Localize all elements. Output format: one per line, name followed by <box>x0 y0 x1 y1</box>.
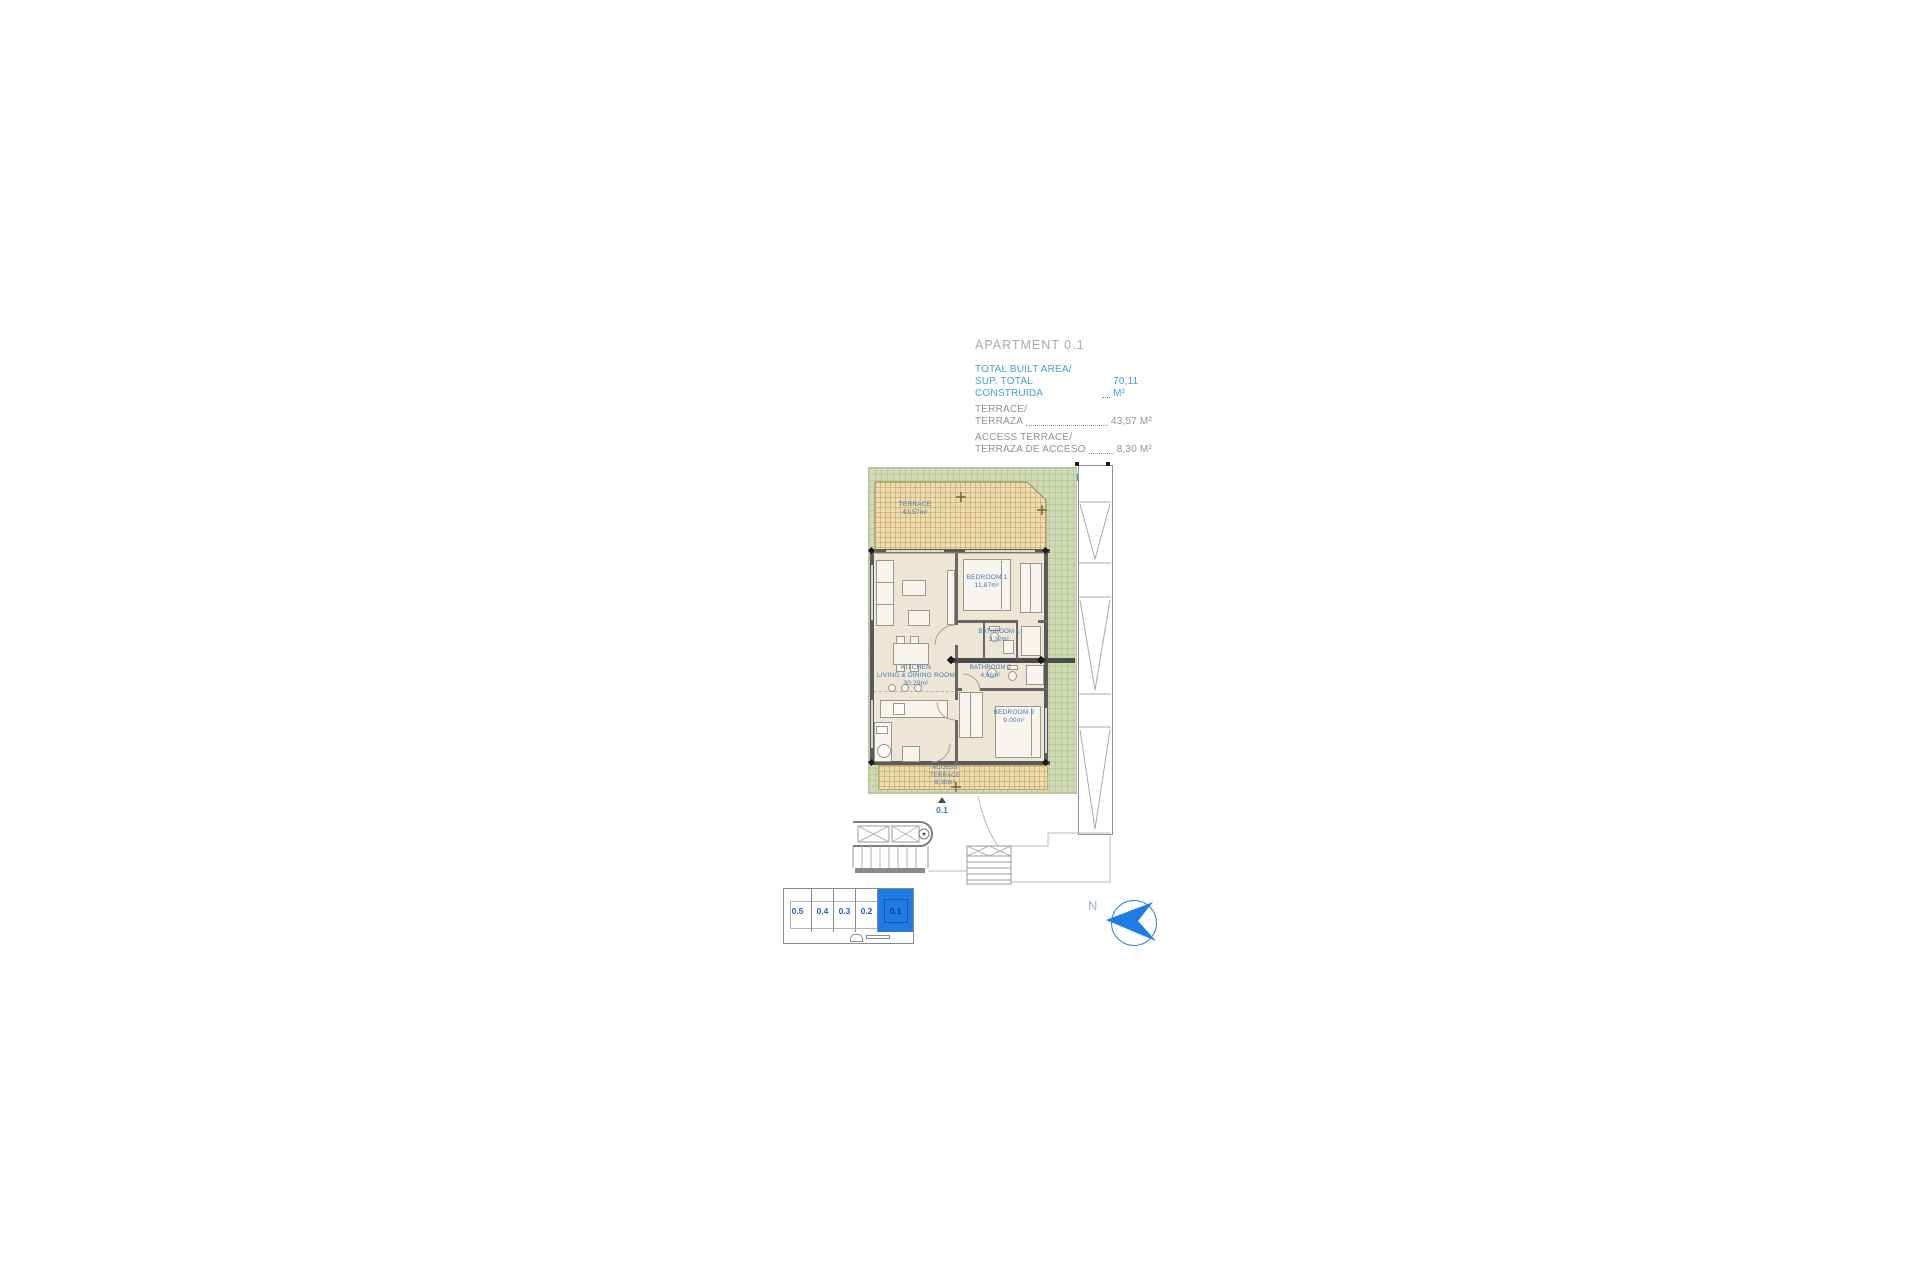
washing-machine <box>877 744 891 758</box>
keyplan-walkway <box>783 932 914 944</box>
header-block: APARTMENT 0.1 TOTAL BUILT AREA/ SUP. TOT… <box>975 338 1152 484</box>
side-table <box>908 610 930 626</box>
wall-interior <box>1038 620 1048 623</box>
entrance-marker-icon <box>938 797 946 803</box>
wall-interior <box>955 620 1018 623</box>
area-label-en: TERRACE/ <box>975 404 1152 416</box>
area-label-es: TERRAZA DE ACCESO <box>975 444 1086 456</box>
keyplan-unit-01-selected: 0.1 <box>878 889 913 933</box>
wall-interior <box>980 688 1048 691</box>
wardrobe-line <box>1030 564 1031 612</box>
area-label-en: TOTAL BUILT AREA/ <box>975 364 1152 376</box>
bathroom2-label: BATHROOM 2 4,66m² <box>963 665 1018 680</box>
window <box>1045 708 1047 753</box>
closet <box>959 692 983 738</box>
kitchen-island <box>880 700 948 718</box>
ceiling-dashed-line <box>874 691 954 692</box>
page-title: APARTMENT 0.1 <box>975 338 1152 352</box>
area-value: 70,11 M² <box>1113 376 1152 400</box>
bedroom1-label: BEDROOM 1 11,87m² <box>958 574 1016 590</box>
wall-interior <box>955 720 958 765</box>
bathroom1-label: BATHROOM 1 3,52m² <box>975 629 1023 644</box>
party-wall <box>953 658 1075 663</box>
window <box>965 550 1035 552</box>
stair-corridor <box>1078 465 1113 835</box>
wardrobe <box>1020 563 1042 613</box>
shower-tray <box>1021 626 1041 656</box>
area-label-es: TERRAZA <box>975 416 1023 428</box>
keyplan-entry-arch <box>850 934 863 942</box>
area-label-en: ACCESS TERRACE/ <box>975 432 1152 444</box>
sofa <box>876 560 894 626</box>
exterior-stair <box>853 822 932 873</box>
fridge <box>902 746 920 762</box>
window <box>886 550 944 552</box>
shower-tray <box>1026 665 1044 685</box>
dotted-leader <box>1102 397 1110 398</box>
window <box>871 565 873 620</box>
keyplan: 0.5 0.4 0.3 0.2 0.1 <box>783 888 914 934</box>
kitchen-label: KITCHEN LIVING & DINING ROOM 30,29m² <box>870 664 962 688</box>
area-row-built: TOTAL BUILT AREA/ SUP. TOTAL CONSTRUIDA … <box>975 364 1152 400</box>
terrace-label: TERRACE 43,57m² <box>885 501 945 517</box>
area-value: 8,30 M² <box>1117 444 1152 456</box>
wall-interior <box>955 688 962 691</box>
access-terrace-label: ACCESS TERRACE 8,30m² <box>924 765 966 788</box>
floorplan-page: APARTMENT 0.1 TOTAL BUILT AREA/ SUP. TOT… <box>0 0 1920 1280</box>
entry-stair <box>967 846 1011 884</box>
tv-unit <box>947 570 955 625</box>
area-row-terrace: TERRACE/ TERRAZA 43,57 M² <box>975 404 1152 428</box>
keyplan-unit-03: 0.3 <box>834 889 856 933</box>
area-table: TOTAL BUILT AREA/ SUP. TOTAL CONSTRUIDA … <box>975 364 1152 456</box>
keyplan-unit-05: 0.5 <box>784 889 812 933</box>
closet-line <box>970 693 971 737</box>
area-row-access-terrace: ACCESS TERRACE/ TERRAZA DE ACCESO 8,30 M… <box>975 432 1152 456</box>
keyplan-step <box>866 935 890 939</box>
north-arrow-icon <box>1111 900 1157 946</box>
dining-table <box>893 643 929 665</box>
dotted-leader <box>1089 453 1114 454</box>
keyplan-unit-02: 0.2 <box>856 889 878 933</box>
terrace-area <box>875 482 1046 553</box>
keyplan-unit-04: 0.4 <box>812 889 834 933</box>
area-value: 43,57 M² <box>1111 416 1152 428</box>
window <box>871 700 873 748</box>
hob <box>893 703 905 715</box>
unit-marker: 0.1 <box>930 805 954 815</box>
coffee-table <box>902 580 926 596</box>
north-label: N <box>1088 898 1097 913</box>
bedroom2-label: BEDROOM 2 9,00m² <box>986 709 1042 725</box>
kitchen-sink <box>876 726 888 734</box>
sofa-cushion-line <box>877 582 893 583</box>
dotted-leader <box>1026 425 1108 426</box>
area-label-es: SUP. TOTAL CONSTRUIDA <box>975 376 1099 400</box>
sofa-cushion-line <box>877 604 893 605</box>
